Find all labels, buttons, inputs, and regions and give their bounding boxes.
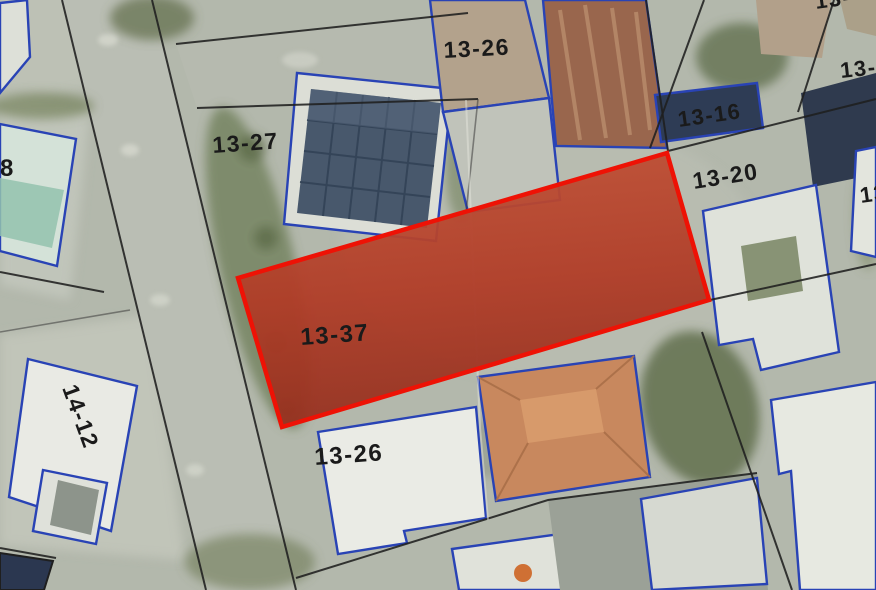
parcel-label-13-26-north: 13-26 <box>443 34 511 63</box>
annex-gray-roof <box>50 480 99 535</box>
road-blob <box>282 52 318 68</box>
road-blob <box>150 294 170 306</box>
parcel-label-13-37: 13-37 <box>300 319 371 351</box>
aerial-photo-map: 13-26 13-27 13-16 13-20 13- 13- 8 13-37 … <box>0 0 876 590</box>
parcel-label-13-partial-upper-right: 13- <box>839 54 876 83</box>
bottom-center-orange-vent <box>514 564 532 582</box>
tree-dot <box>254 226 278 250</box>
road-blob <box>186 464 204 476</box>
road-blob <box>98 34 118 46</box>
parcel-label-8-partial: 8 <box>0 155 15 182</box>
road-blob <box>121 144 139 156</box>
building-bottom-gray-inner <box>641 478 767 590</box>
parcel-label-13-partial-right: 13 <box>858 179 876 208</box>
parcel-label-13-27: 13-27 <box>212 127 280 158</box>
parcel-label-13-26-south: 13-26 <box>314 439 385 471</box>
aerial-map: 13-26 13-27 13-16 13-20 13- 13- 8 13-37 … <box>0 0 876 590</box>
